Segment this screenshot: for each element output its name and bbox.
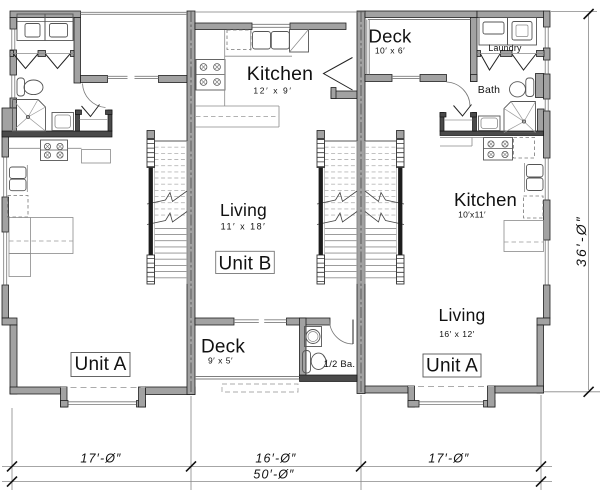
svg-text:Laundry: Laundry — [488, 43, 522, 53]
svg-text:17′-Ø″: 17′-Ø″ — [428, 452, 469, 466]
svg-text:1/2 Ba.: 1/2 Ba. — [324, 359, 356, 370]
svg-text:Unit A: Unit A — [426, 356, 478, 377]
svg-text:16′ x 12′: 16′ x 12′ — [439, 329, 475, 339]
svg-text:50′-Ø″: 50′-Ø″ — [253, 468, 294, 482]
svg-text:Deck: Deck — [369, 26, 412, 47]
svg-text:Living: Living — [220, 200, 267, 220]
svg-text:10′ x 6′: 10′ x 6′ — [375, 46, 405, 56]
svg-text:9′ x 5′: 9′ x 5′ — [208, 356, 233, 366]
svg-text:11′ x 18′: 11′ x 18′ — [221, 222, 267, 232]
svg-text:Kitchen: Kitchen — [247, 63, 313, 85]
svg-text:Kitchen: Kitchen — [454, 189, 517, 210]
svg-text:Bath: Bath — [478, 84, 500, 96]
svg-text:36′-Ø″: 36′-Ø″ — [573, 215, 589, 267]
svg-text:Unit B: Unit B — [219, 254, 272, 275]
svg-text:10′x11′: 10′x11′ — [458, 210, 486, 220]
svg-text:12′ x 9′: 12′ x 9′ — [253, 86, 292, 96]
svg-text:Living: Living — [439, 305, 486, 325]
svg-text:16′-Ø″: 16′-Ø″ — [255, 452, 296, 466]
svg-text:Unit A: Unit A — [75, 354, 127, 375]
svg-text:Deck: Deck — [201, 337, 245, 358]
svg-text:17′-Ø″: 17′-Ø″ — [80, 452, 121, 466]
